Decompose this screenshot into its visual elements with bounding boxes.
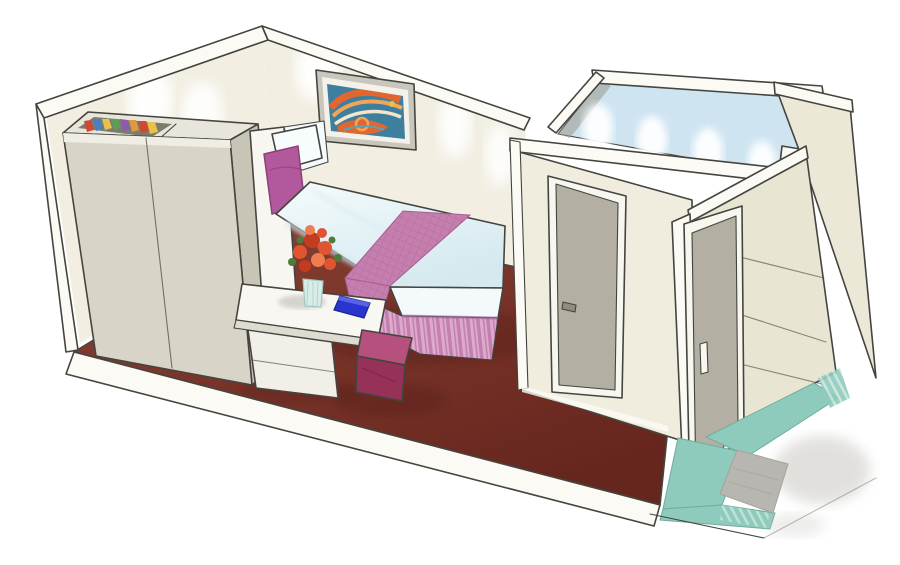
flower-bloom	[324, 258, 336, 270]
entry-door-handle	[700, 342, 708, 374]
flower-bloom	[305, 225, 315, 235]
flower-bloom	[311, 253, 325, 267]
cabin-illustration	[0, 0, 900, 565]
artwork-swirl	[389, 101, 395, 107]
flower-bloom	[318, 241, 332, 255]
entry-shadow	[774, 436, 870, 504]
flower-bloom	[293, 245, 307, 259]
flower-leaf	[297, 237, 304, 244]
entry-shadow	[765, 513, 825, 537]
flower-leaf	[334, 254, 342, 262]
mattress-front	[390, 287, 503, 318]
flower-leaf	[329, 237, 336, 244]
bed-skirt-shadow	[402, 316, 498, 318]
bathroom-door	[556, 184, 618, 390]
flower-bloom	[299, 260, 311, 272]
flower-bloom	[317, 228, 327, 238]
bathroom-ceiling-glow	[583, 104, 613, 152]
stool	[356, 330, 412, 401]
artwork	[316, 70, 416, 150]
cabin-illustration-stage	[0, 0, 900, 565]
flower-leaf	[288, 258, 296, 266]
